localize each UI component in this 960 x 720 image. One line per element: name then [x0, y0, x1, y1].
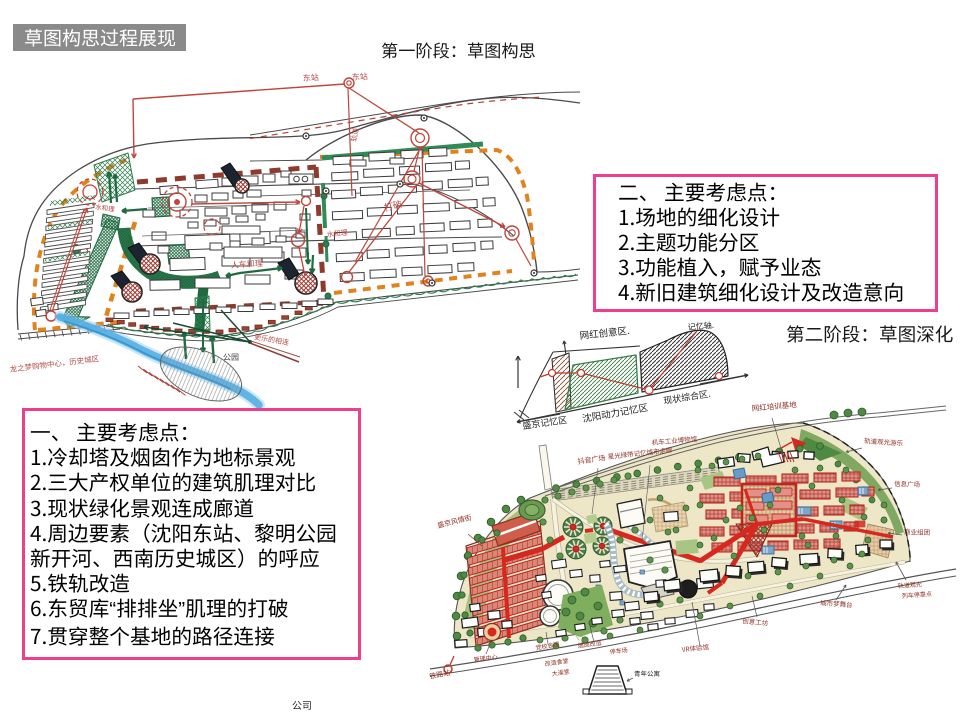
svg-text:停车场: 停车场	[609, 645, 628, 656]
svg-text:列车停靠点: 列车停靠点	[902, 589, 933, 600]
svg-text:管理中心: 管理中心	[473, 652, 498, 664]
svg-text:盛京记忆区: 盛京记忆区	[522, 413, 568, 432]
svg-text:创意工坊: 创意工坊	[742, 615, 769, 628]
svg-text:轨道: 轨道	[349, 127, 361, 143]
svg-text:东站: 东站	[302, 72, 319, 84]
svg-text:抖音广场: 抖音广场	[577, 453, 606, 467]
svg-text:东站: 东站	[351, 71, 368, 83]
svg-text:网红培训基地: 网红培训基地	[751, 399, 797, 414]
svg-text:公园: 公园	[223, 352, 239, 363]
svg-text:网红创意区.: 网红创意区.	[579, 323, 630, 342]
svg-text:轨道观光游乐: 轨道观光游乐	[864, 435, 904, 448]
svg-text:商业组团: 商业组团	[904, 526, 930, 537]
svg-text:公司: 公司	[292, 697, 312, 712]
svg-text:铁路站: 铁路站	[429, 668, 452, 682]
svg-text:大澡堂: 大澡堂	[551, 667, 570, 678]
svg-text:龙之梦购物中心，历史城区: 龙之梦购物中心，历史城区	[9, 353, 100, 375]
svg-text:盛京风情街: 盛京风情街	[436, 513, 472, 531]
svg-text:轨道观光: 轨道观光	[898, 579, 923, 590]
svg-text:VR体验馆: VR体验馆	[681, 641, 710, 654]
svg-text:信息广场: 信息广场	[894, 478, 921, 489]
svg-text:人车和理: 人车和理	[230, 258, 263, 271]
svg-text:水和理: 水和理	[95, 201, 116, 214]
svg-text:现状综合区.: 现状综合区.	[662, 387, 711, 407]
svg-text:青年公寓: 青年公寓	[634, 668, 660, 678]
svg-text:记忆轴.: 记忆轴.	[687, 320, 714, 333]
